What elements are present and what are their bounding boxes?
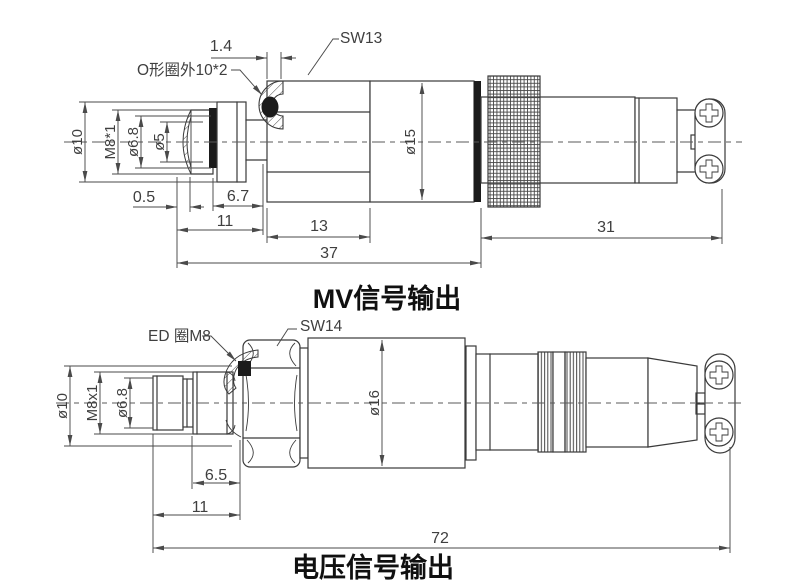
bottom-callout-wrench: SW14 — [300, 318, 343, 335]
bottom-dim-front: 11 — [192, 499, 209, 516]
bottom-dia-outer: ø10 — [54, 393, 71, 419]
top-dia-body: ø15 — [402, 129, 419, 155]
drawing-canvas: 0.5 1.4 6.7 11 13 37 31 ø10 M8*1 ø6.8 ø5… — [0, 0, 799, 586]
bottom-title: 电压信号输出 — [292, 552, 454, 583]
top-drawing: 0.5 1.4 6.7 11 13 37 31 ø10 M8*1 ø6.8 ø5… — [64, 30, 742, 314]
top-seal-band — [209, 108, 217, 168]
bottom-drawing: 6.5 11 72 ø10 M8x1 ø6.8 ø16 SW14 ED 圈M8 … — [54, 318, 744, 583]
bottom-dim-front-thread: 6.5 — [205, 467, 227, 484]
top-body-end-band — [474, 81, 481, 202]
bottom-taper — [648, 358, 697, 447]
bottom-knurled-ring — [538, 352, 553, 452]
top-dia-thread: M8*1 — [102, 124, 119, 159]
top-callout-wrench: SW13 — [340, 30, 382, 47]
top-dim-body: 37 — [320, 245, 338, 262]
ed-seal-section — [238, 361, 251, 376]
phillips-screw-icon — [705, 361, 733, 389]
top-dim-oring-width: 1.4 — [210, 38, 232, 55]
bottom-dia-body: ø16 — [366, 390, 383, 416]
top-dim-hex: 13 — [310, 218, 328, 235]
phillips-screw-icon — [695, 99, 723, 127]
top-end-cap — [635, 98, 699, 183]
technical-drawing-page: 0.5 1.4 6.7 11 13 37 31 ø10 M8*1 ø6.8 ø5… — [0, 0, 799, 586]
bottom-dia-thread: M8x1 — [84, 385, 101, 422]
top-title: MV信号输出 — [313, 283, 462, 314]
top-dia-bore: ø6.8 — [125, 127, 142, 157]
o-ring-section — [262, 97, 279, 118]
top-callout-oring: O形圈外10*2 — [137, 61, 227, 79]
bottom-knurled-ring — [565, 352, 586, 452]
top-dim-connector: 31 — [597, 219, 615, 236]
top-dia-outer: ø10 — [69, 129, 86, 155]
top-dia-inner: ø5 — [151, 133, 168, 151]
bottom-dim-total: 72 — [431, 530, 449, 547]
bottom-callout-seal: ED 圈M8 — [148, 328, 211, 345]
phillips-screw-icon — [695, 155, 723, 183]
bottom-dia-bore: ø6.8 — [114, 388, 131, 418]
bottom-hex-nut-sw14 — [243, 340, 300, 467]
phillips-screw-icon — [705, 418, 733, 446]
top-dim-front-thread: 6.7 — [227, 188, 249, 205]
top-hex-body-sw13 — [267, 81, 370, 202]
top-dim-tip: 0.5 — [133, 189, 155, 206]
top-dim-front: 11 — [217, 213, 234, 230]
top-knurled-ring — [488, 76, 540, 207]
